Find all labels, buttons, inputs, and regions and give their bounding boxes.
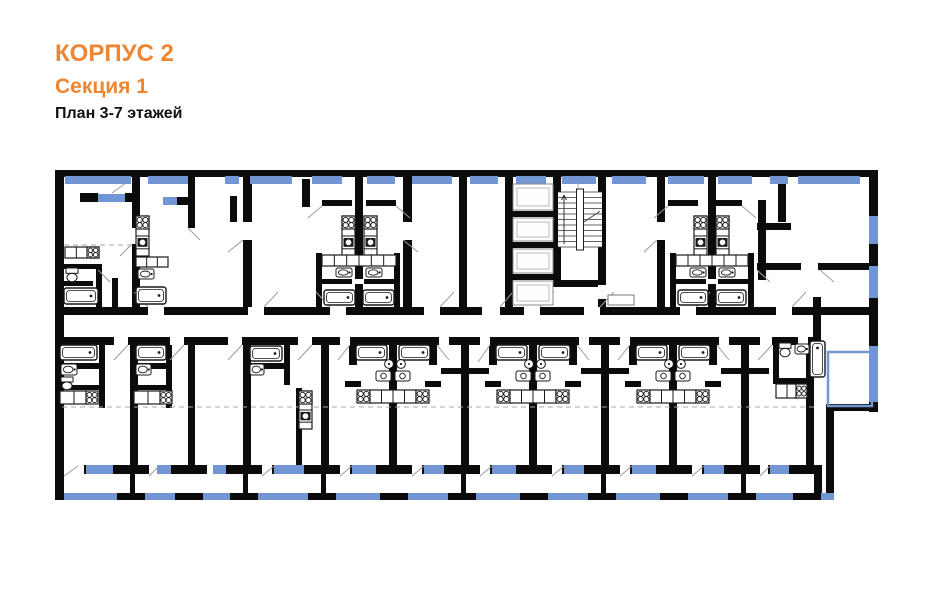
- window-segment: [250, 176, 292, 184]
- wall: [773, 378, 811, 384]
- door-swing-line: [437, 345, 449, 360]
- sink-tap: [703, 271, 705, 273]
- window-segment: [869, 266, 878, 298]
- sink-drain: [400, 363, 402, 365]
- door-opening: [584, 307, 600, 315]
- wall: [658, 465, 690, 474]
- wall: [403, 170, 412, 315]
- wall: [712, 200, 742, 206]
- column-sink-bowl: [368, 240, 374, 246]
- wall: [355, 170, 363, 315]
- door-opening: [524, 307, 540, 315]
- toilet-tank: [61, 377, 73, 382]
- sink-drain: [680, 363, 682, 365]
- door-opening: [64, 465, 84, 474]
- wall: [757, 223, 791, 230]
- door-swing-line: [170, 345, 184, 360]
- window-segment: [516, 176, 546, 184]
- door-opening: [340, 337, 350, 345]
- window-segment: [492, 465, 516, 474]
- door-opening: [480, 337, 490, 345]
- sink-tap: [148, 368, 150, 370]
- door-swing-line: [717, 345, 729, 360]
- bath-drain: [158, 294, 161, 297]
- wall: [657, 170, 665, 315]
- wall: [826, 404, 834, 500]
- door-opening: [598, 285, 606, 299]
- window-segment: [412, 176, 452, 184]
- window-segment: [258, 493, 308, 500]
- door-opening: [482, 307, 500, 315]
- door-opening: [680, 307, 696, 315]
- door-swing-line: [644, 240, 657, 252]
- sink-tap: [806, 348, 808, 350]
- washing-machine: [516, 371, 531, 381]
- door-swing-line: [792, 292, 806, 307]
- door-opening: [760, 337, 772, 345]
- sink-drain: [668, 363, 670, 365]
- wall: [173, 465, 205, 474]
- door-opening: [228, 337, 242, 345]
- washing-machine: [535, 371, 550, 381]
- window-segment: [86, 465, 113, 474]
- door-swing-line: [228, 345, 242, 360]
- door-swing-line: [308, 206, 322, 218]
- bath-drain: [738, 296, 741, 299]
- door-opening: [330, 307, 346, 315]
- door-opening: [719, 337, 729, 345]
- window-segment: [225, 176, 239, 184]
- wall: [461, 474, 466, 493]
- window-segment: [821, 493, 834, 500]
- wall: [188, 340, 195, 465]
- column-sink-bowl: [720, 240, 726, 246]
- wall: [581, 368, 629, 374]
- sink-drain: [388, 363, 390, 365]
- door-swing-line: [188, 228, 200, 240]
- bath-drain: [274, 352, 277, 355]
- bath-drain: [158, 351, 161, 354]
- floor-plan-svg: [0, 0, 941, 600]
- wall: [459, 170, 467, 315]
- door-opening: [243, 222, 252, 240]
- door-swing-line: [758, 345, 772, 360]
- door-opening: [403, 222, 412, 240]
- sink-drain: [540, 363, 542, 365]
- wall: [757, 263, 801, 270]
- window-segment: [148, 176, 188, 184]
- wall: [306, 465, 338, 474]
- wall: [228, 465, 260, 474]
- sink-tap: [379, 271, 381, 273]
- window-segment: [756, 493, 793, 500]
- window-segment: [203, 493, 230, 500]
- bath-drain: [700, 296, 703, 299]
- wall: [322, 200, 352, 206]
- door-opening: [706, 279, 718, 284]
- wall: [505, 242, 553, 248]
- wall: [378, 465, 410, 474]
- washing-machine: [675, 371, 690, 381]
- window-segment: [632, 465, 656, 474]
- door-swing-line: [228, 240, 243, 252]
- wall: [485, 381, 501, 387]
- window-segment: [312, 176, 342, 184]
- window-segment: [274, 465, 304, 474]
- window-segment: [770, 465, 789, 474]
- washing-machine: [656, 371, 671, 381]
- window-segment: [367, 176, 395, 184]
- window-segment: [145, 493, 175, 500]
- bath-drain: [379, 351, 382, 354]
- door-swing-line: [298, 345, 312, 360]
- wall: [115, 465, 147, 474]
- window-segment: [869, 216, 878, 244]
- door-swing-line: [478, 345, 490, 362]
- wall: [62, 281, 93, 286]
- wall: [773, 340, 779, 380]
- door-opening: [170, 337, 184, 345]
- wall: [586, 465, 618, 474]
- bath-drain: [816, 347, 819, 350]
- wall: [99, 345, 105, 408]
- wall: [134, 385, 168, 390]
- sink-tap: [151, 273, 153, 275]
- wall: [441, 368, 489, 374]
- toilet-bowl: [62, 382, 72, 390]
- elevator-shaft: [513, 218, 553, 241]
- window-segment: [476, 493, 520, 500]
- door-opening: [439, 337, 449, 345]
- window-segment: [213, 465, 226, 474]
- wall: [813, 297, 821, 345]
- door-opening: [114, 337, 128, 345]
- door-swing-line: [440, 292, 454, 307]
- wall: [668, 200, 698, 206]
- window-segment: [64, 493, 117, 500]
- bath-drain: [562, 351, 565, 354]
- wall: [243, 170, 252, 315]
- window-segment: [65, 176, 131, 184]
- wall: [321, 340, 329, 465]
- door-swing-line: [120, 244, 132, 256]
- wall: [321, 474, 326, 493]
- toilet-tank: [66, 268, 78, 273]
- door-swing-line: [618, 345, 630, 360]
- door-opening: [207, 465, 213, 474]
- wall: [345, 381, 361, 387]
- door-swing-line: [338, 345, 350, 360]
- toilet-tank: [779, 343, 791, 348]
- bath-drain: [89, 351, 92, 354]
- wall: [446, 465, 478, 474]
- sink-tap: [261, 368, 263, 370]
- window-segment: [424, 465, 444, 474]
- door-swing-line: [264, 292, 278, 307]
- sink-drain: [528, 363, 530, 365]
- wall: [741, 474, 746, 493]
- door-opening: [424, 307, 440, 315]
- wall: [625, 381, 641, 387]
- window-segment: [770, 176, 788, 184]
- bath-drain: [347, 296, 350, 299]
- sink-tap: [349, 271, 351, 273]
- window-segment: [98, 194, 125, 202]
- column-sink-bowl: [346, 240, 352, 246]
- window-segment: [564, 465, 584, 474]
- wall: [177, 197, 189, 205]
- stair-stringer: [576, 189, 583, 250]
- window-segment: [704, 465, 724, 474]
- door-opening: [298, 337, 312, 345]
- window-segment: [612, 176, 646, 184]
- door-swing-line: [114, 345, 128, 360]
- bath-drain: [702, 351, 705, 354]
- toilet-bowl: [67, 273, 77, 281]
- wall: [366, 200, 396, 206]
- wall: [741, 337, 749, 465]
- floor-plan-container: [0, 0, 941, 600]
- wall: [125, 193, 133, 202]
- door-opening: [352, 279, 364, 284]
- window-segment: [336, 493, 380, 500]
- toilet-bowl: [780, 348, 790, 356]
- wall: [505, 211, 553, 217]
- wall: [230, 196, 237, 222]
- door-opening: [579, 337, 589, 345]
- wall: [130, 474, 135, 493]
- door-opening: [657, 222, 666, 240]
- window-segment: [408, 493, 448, 500]
- wall: [461, 337, 469, 465]
- wall: [705, 381, 721, 387]
- bath-drain: [422, 351, 425, 354]
- window-segment: [688, 493, 728, 500]
- wall: [726, 465, 758, 474]
- wall: [791, 465, 818, 474]
- sink-tap: [74, 368, 76, 370]
- wall: [565, 381, 581, 387]
- floor-plan-page: { "header": { "building": "КОРПУС 2", "s…: [0, 0, 941, 600]
- window-segment: [562, 176, 596, 184]
- door-swing-line: [820, 270, 834, 282]
- wall: [243, 474, 248, 493]
- door-opening: [148, 307, 164, 315]
- bath-drain: [90, 295, 93, 298]
- landing-slab: [608, 295, 634, 305]
- column-sink-bowl: [140, 240, 146, 246]
- bath-drain: [659, 351, 662, 354]
- door-swing-line: [577, 345, 589, 360]
- wall: [112, 278, 118, 309]
- wall: [601, 337, 609, 465]
- window-segment: [163, 197, 177, 205]
- wall: [425, 381, 441, 387]
- window-segment: [352, 465, 376, 474]
- washing-machine: [395, 371, 410, 381]
- window-segment: [718, 176, 752, 184]
- column-sink-bowl: [698, 240, 704, 246]
- sink-tap: [732, 271, 734, 273]
- window-segment: [616, 493, 660, 500]
- bath-drain: [386, 296, 389, 299]
- window-segment: [798, 176, 860, 184]
- wall: [721, 368, 769, 374]
- window-segment: [869, 346, 878, 402]
- kitchen-counter: [136, 257, 168, 267]
- wall: [302, 179, 310, 207]
- wall: [80, 193, 98, 202]
- door-opening: [776, 307, 792, 315]
- wall: [55, 170, 64, 500]
- wall: [601, 474, 606, 493]
- bath-drain: [519, 351, 522, 354]
- wall: [818, 263, 869, 270]
- wall: [518, 465, 550, 474]
- door-swing-line: [112, 183, 126, 193]
- door-swing-line: [742, 206, 756, 218]
- window-segment: [470, 176, 498, 184]
- wall: [505, 274, 553, 280]
- window-segment: [668, 176, 704, 184]
- door-opening: [620, 337, 630, 345]
- washing-machine: [376, 371, 391, 381]
- wall: [188, 170, 195, 228]
- window-segment: [548, 493, 588, 500]
- door-opening: [248, 307, 264, 315]
- balcony-glazing: [828, 352, 872, 406]
- column-sink-bowl: [303, 413, 309, 419]
